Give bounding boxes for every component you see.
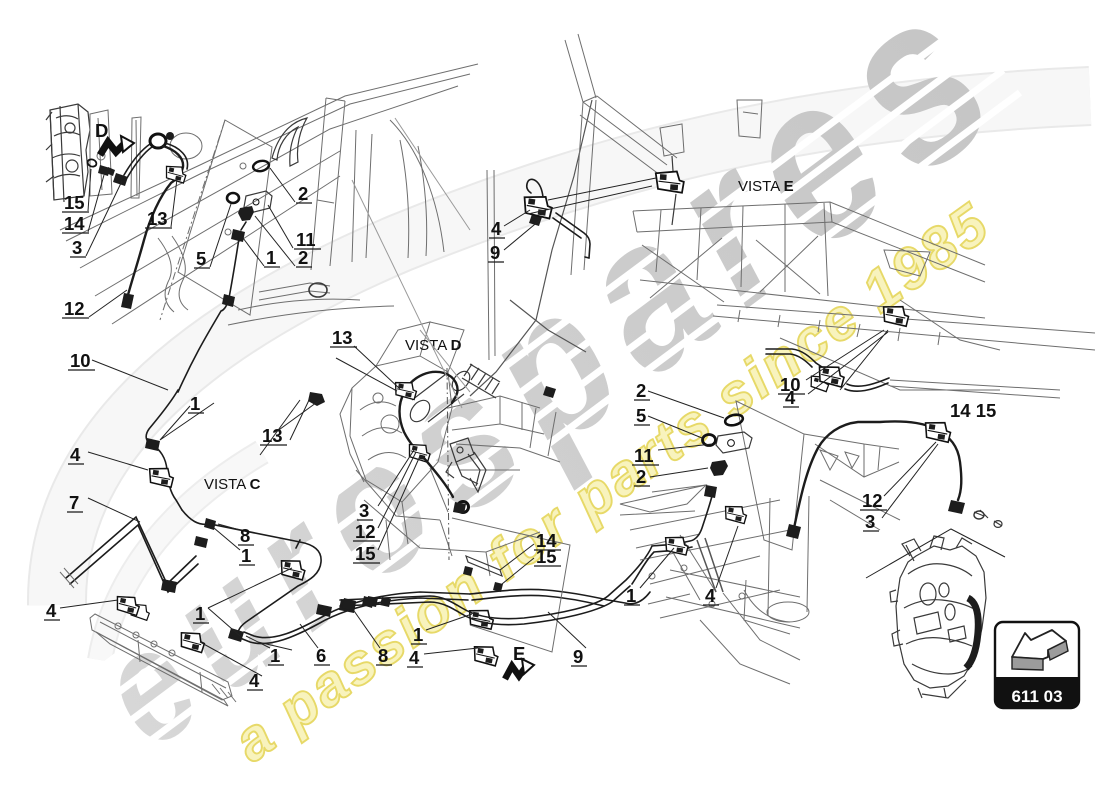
svg-text:4: 4 — [249, 670, 260, 691]
svg-text:12: 12 — [355, 521, 376, 542]
svg-text:5: 5 — [636, 405, 646, 426]
svg-text:1: 1 — [190, 393, 200, 414]
svg-text:1: 1 — [626, 585, 636, 606]
svg-text:2: 2 — [636, 380, 646, 401]
svg-text:15: 15 — [536, 546, 557, 567]
svg-text:2: 2 — [298, 183, 308, 204]
svg-text:D: D — [95, 120, 108, 141]
svg-text:5: 5 — [196, 248, 206, 269]
svg-text:1: 1 — [270, 645, 280, 666]
svg-text:1: 1 — [266, 247, 276, 268]
svg-text:15: 15 — [355, 543, 376, 564]
svg-text:VISTA C: VISTA C — [204, 476, 261, 493]
svg-text:12: 12 — [64, 298, 85, 319]
svg-text:11: 11 — [634, 445, 654, 466]
svg-text:3: 3 — [359, 500, 369, 521]
svg-text:1: 1 — [413, 624, 423, 645]
svg-text:4: 4 — [491, 218, 502, 239]
svg-text:15: 15 — [64, 192, 85, 213]
svg-text:7: 7 — [69, 492, 79, 513]
svg-text:4: 4 — [409, 647, 420, 668]
svg-text:9: 9 — [573, 646, 583, 667]
svg-text:3: 3 — [72, 237, 82, 258]
svg-text:1: 1 — [195, 603, 205, 624]
svg-text:4: 4 — [70, 444, 81, 465]
svg-text:14 15: 14 15 — [950, 400, 996, 421]
svg-text:611 03: 611 03 — [1011, 687, 1062, 706]
svg-text:3: 3 — [865, 511, 875, 532]
svg-text:9: 9 — [490, 242, 500, 263]
svg-text:8: 8 — [240, 525, 250, 546]
svg-text:14: 14 — [64, 213, 85, 234]
svg-text:VISTA E: VISTA E — [738, 178, 794, 195]
svg-text:4: 4 — [785, 387, 796, 408]
svg-text:13: 13 — [147, 208, 168, 229]
svg-text:2: 2 — [298, 247, 308, 268]
svg-text:12: 12 — [862, 490, 883, 511]
svg-text:4: 4 — [705, 585, 716, 606]
svg-text:VISTA D: VISTA D — [405, 337, 462, 354]
svg-text:10: 10 — [70, 350, 91, 371]
svg-text:1: 1 — [241, 545, 251, 566]
svg-text:13: 13 — [332, 327, 353, 348]
svg-text:4: 4 — [46, 600, 57, 621]
svg-text:2: 2 — [636, 466, 646, 487]
